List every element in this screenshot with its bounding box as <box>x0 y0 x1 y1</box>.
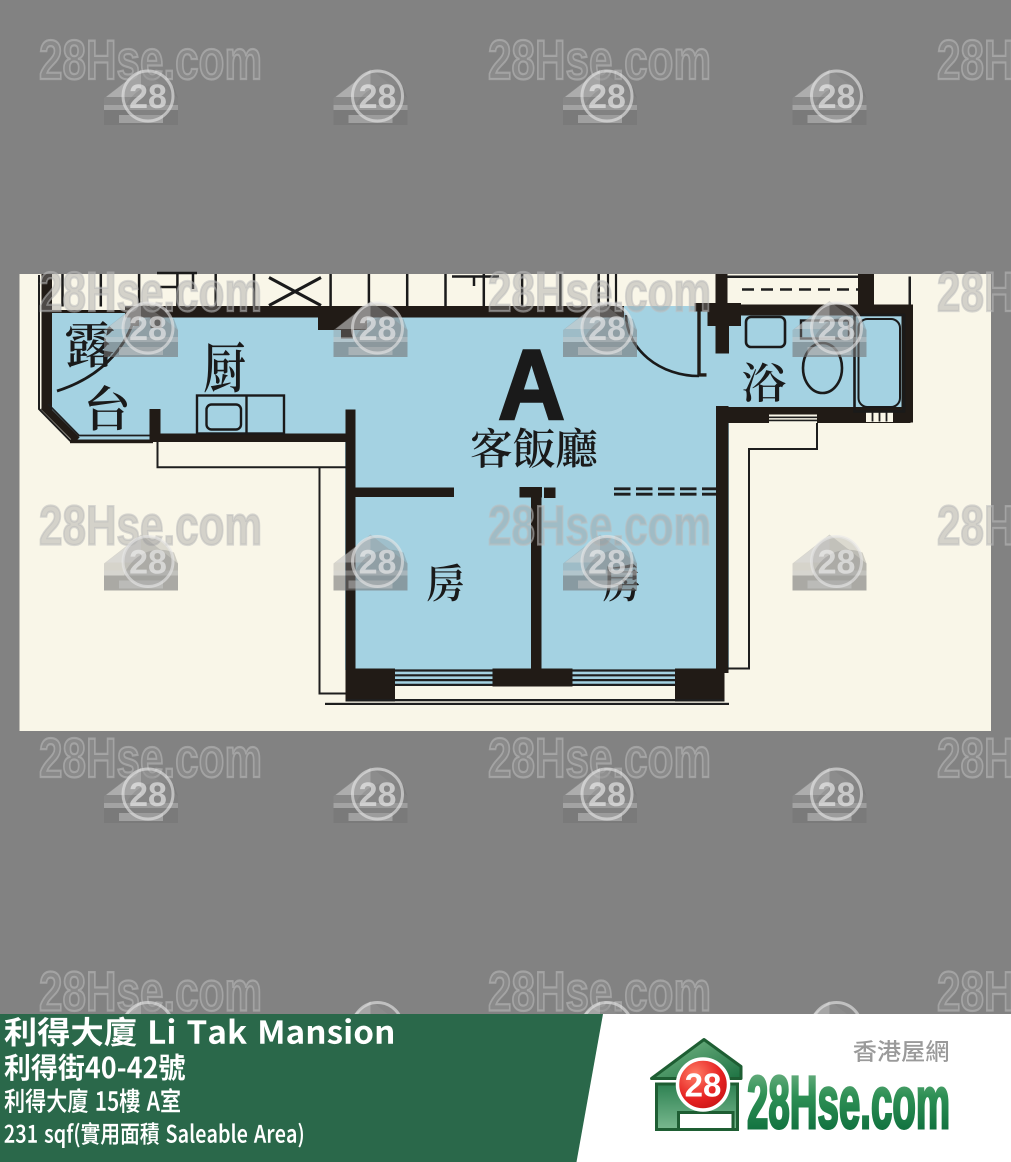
svg-text:A: A <box>498 329 565 440</box>
svg-text:28: 28 <box>685 1067 722 1104</box>
svg-text:28Hse.com: 28Hse.com <box>747 1061 950 1144</box>
